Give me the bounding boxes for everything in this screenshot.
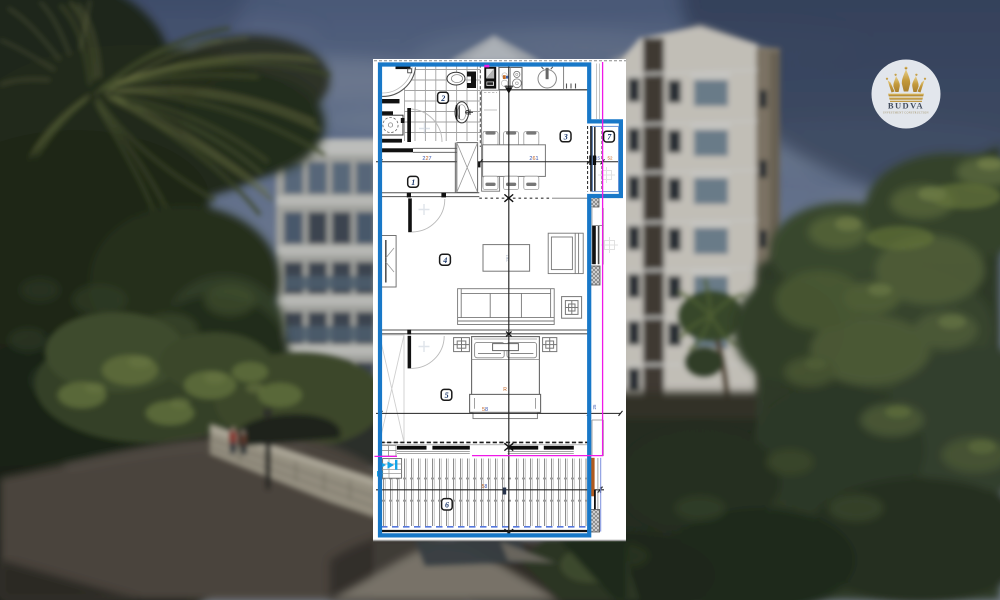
svg-text:58: 58: [482, 407, 488, 413]
svg-text:25: 25: [592, 404, 597, 410]
svg-text:4: 4: [442, 256, 447, 265]
svg-text:227: 227: [422, 156, 431, 162]
svg-text:261: 261: [529, 156, 538, 162]
svg-text:1: 1: [411, 178, 415, 187]
svg-text:INVESTMENT CONSTRUCTION: INVESTMENT CONSTRUCTION: [883, 112, 928, 115]
svg-text:BUDVA: BUDVA: [888, 101, 924, 111]
svg-text:2: 2: [440, 94, 445, 103]
svg-text:52: 52: [607, 156, 613, 161]
svg-text:6: 6: [445, 500, 449, 509]
svg-text:3: 3: [563, 132, 568, 141]
svg-text:R: R: [503, 387, 507, 393]
svg-text:5: 5: [445, 391, 449, 400]
svg-text:58: 58: [482, 484, 488, 490]
